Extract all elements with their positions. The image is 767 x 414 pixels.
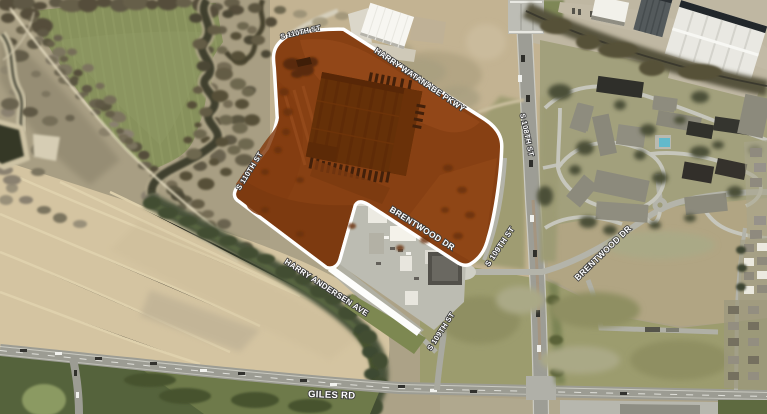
svg-text:GILES RD: GILES RD — [308, 389, 356, 402]
